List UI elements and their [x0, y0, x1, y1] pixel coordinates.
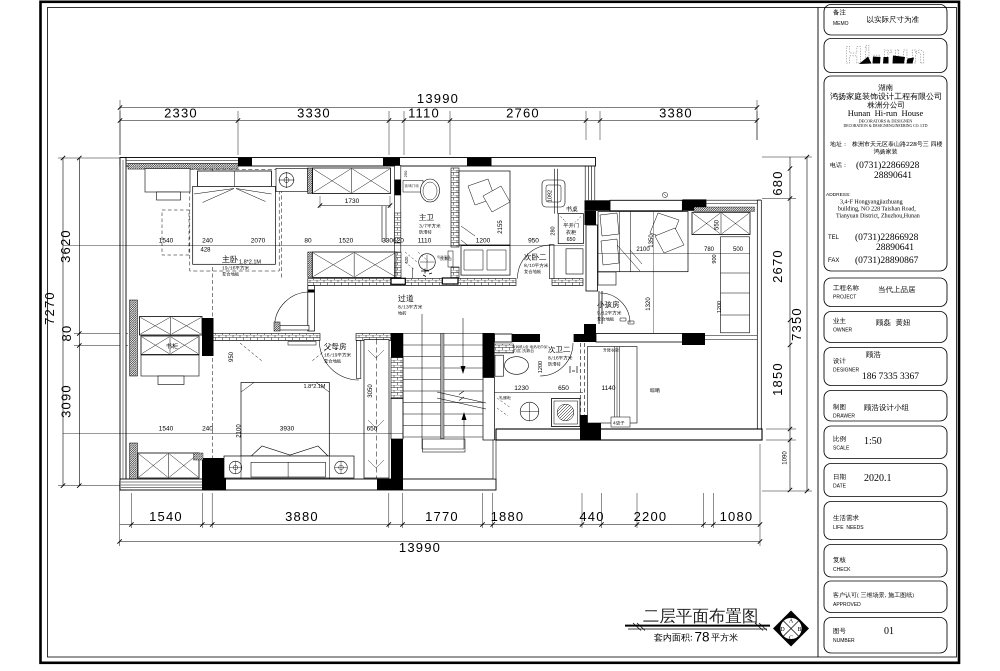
- svg-text:780: 780: [704, 247, 715, 253]
- svg-text:DATE: DATE: [833, 484, 847, 490]
- svg-text:1140: 1140: [602, 385, 616, 392]
- svg-text:D: D: [780, 627, 785, 633]
- svg-text:7350: 7350: [789, 307, 804, 341]
- svg-text:Tianyuan District, Zhuzhou,Hun: Tianyuan District, Zhuzhou,Hunan: [836, 214, 920, 220]
- svg-text:2760: 2760: [506, 106, 540, 121]
- svg-text:1770: 1770: [425, 509, 459, 524]
- svg-text:80: 80: [304, 238, 312, 245]
- svg-text:240: 240: [202, 238, 213, 245]
- svg-text:B: B: [797, 627, 801, 633]
- svg-text:13990: 13990: [399, 540, 441, 555]
- svg-text:950: 950: [229, 351, 235, 362]
- svg-text:1540: 1540: [149, 509, 183, 524]
- svg-text:DRAWER: DRAWER: [833, 414, 855, 420]
- svg-text:3330: 3330: [297, 106, 331, 121]
- svg-text:1090: 1090: [783, 451, 789, 465]
- svg-text:MEMO: MEMO: [833, 21, 849, 27]
- svg-text:3380: 3380: [659, 106, 693, 121]
- svg-text:DECORATION & DESIGNENGINEERING: DECORATION & DESIGNENGINEERING CO. LTD: [844, 124, 928, 128]
- svg-text:DECORATORS & DESIGNEN: DECORATORS & DESIGNEN: [859, 119, 913, 124]
- svg-text:1:50: 1:50: [864, 436, 882, 447]
- svg-text:2670: 2670: [770, 249, 785, 283]
- svg-text:1110: 1110: [408, 106, 440, 121]
- svg-text:440: 440: [579, 509, 604, 524]
- svg-text:620: 620: [404, 256, 409, 264]
- svg-text:building, NO 228 Taishan Road,: building, NO 228 Taishan Road,: [838, 207, 916, 213]
- svg-text:A: A: [789, 619, 794, 625]
- svg-text:428: 428: [200, 248, 211, 254]
- svg-text:3880: 3880: [285, 509, 319, 524]
- svg-text:2070: 2070: [251, 238, 266, 245]
- svg-text:APPROVED: APPROVED: [833, 602, 861, 608]
- svg-text:C: C: [789, 636, 793, 642]
- svg-text:1850: 1850: [770, 362, 785, 396]
- svg-text:3930: 3930: [280, 426, 295, 433]
- svg-text:Hunan Hi-run House: Hunan Hi-run House: [848, 108, 924, 118]
- svg-text:DESIGNER: DESIGNER: [833, 368, 860, 374]
- svg-text:NUMBER: NUMBER: [833, 638, 855, 644]
- svg-text:250: 250: [403, 170, 408, 177]
- svg-text:650: 650: [558, 385, 569, 392]
- svg-text:2020.1: 2020.1: [864, 473, 892, 484]
- svg-text:950: 950: [528, 238, 539, 245]
- svg-text:680: 680: [770, 170, 785, 195]
- svg-text:(0731)22866928: (0731)22866928: [856, 160, 920, 171]
- svg-text:1080: 1080: [720, 509, 754, 524]
- svg-text:650: 650: [567, 237, 576, 243]
- svg-text:1230: 1230: [514, 385, 529, 392]
- svg-text:PROJECT: PROJECT: [833, 295, 856, 301]
- svg-text:1350: 1350: [649, 234, 655, 248]
- svg-text:(0731)28890867: (0731)28890867: [855, 255, 919, 266]
- svg-text:500: 500: [733, 247, 744, 253]
- svg-text:TEL: TEL: [828, 235, 840, 241]
- svg-text:1.8*2.1M: 1.8*2.1M: [239, 260, 261, 266]
- svg-text:FAX: FAX: [828, 258, 839, 264]
- svg-text:Hi-run: Hi-run: [845, 42, 928, 69]
- svg-text:1200: 1200: [538, 361, 544, 373]
- svg-text:900: 900: [712, 254, 718, 263]
- svg-text:OWNER: OWNER: [833, 328, 853, 334]
- svg-text:1730: 1730: [345, 198, 360, 205]
- svg-text:1200: 1200: [717, 301, 723, 313]
- svg-text:28890641: 28890641: [874, 171, 912, 181]
- svg-text:28890641: 28890641: [876, 243, 914, 253]
- svg-text:1540: 1540: [159, 238, 174, 245]
- svg-text:1320: 1320: [646, 297, 652, 311]
- svg-text:80: 80: [59, 325, 74, 342]
- svg-text:1520: 1520: [339, 238, 354, 245]
- svg-text:7270: 7270: [42, 291, 57, 325]
- svg-text:3620: 3620: [58, 229, 73, 263]
- svg-text:LIFE NEEDS: LIFE NEEDS: [833, 525, 864, 531]
- svg-text:01: 01: [884, 626, 894, 637]
- svg-text:330620: 330620: [382, 238, 404, 245]
- svg-text:650: 650: [367, 426, 378, 433]
- svg-text:78: 78: [694, 630, 709, 645]
- svg-text:1880: 1880: [491, 509, 525, 524]
- svg-text:1200: 1200: [476, 238, 491, 245]
- svg-text:13990: 13990: [417, 91, 459, 106]
- svg-text:3090: 3090: [59, 384, 74, 418]
- svg-text:186 7335 3367: 186 7335 3367: [862, 372, 919, 382]
- svg-text:SCALE: SCALE: [833, 446, 850, 452]
- svg-text:1110: 1110: [418, 238, 432, 245]
- svg-text:2100: 2100: [237, 424, 243, 438]
- svg-text:280: 280: [551, 226, 557, 235]
- svg-text:CHECK: CHECK: [833, 567, 851, 573]
- svg-text:240: 240: [202, 426, 213, 433]
- svg-text:2155: 2155: [498, 220, 504, 234]
- svg-text:ADDRESS:: ADDRESS:: [826, 192, 851, 198]
- svg-text:2200: 2200: [634, 509, 668, 524]
- svg-text:1.8*2.1M: 1.8*2.1M: [303, 384, 325, 390]
- svg-text:1540: 1540: [159, 426, 174, 433]
- svg-text:3050: 3050: [368, 384, 374, 398]
- svg-text:(0731)22866928: (0731)22866928: [855, 232, 919, 243]
- svg-text:1092: 1092: [548, 190, 554, 202]
- svg-text:3,4-F Hongyangjiazhuang: 3,4-F Hongyangjiazhuang: [840, 200, 903, 206]
- svg-text:550: 550: [715, 219, 721, 230]
- svg-text:2330: 2330: [164, 106, 198, 121]
